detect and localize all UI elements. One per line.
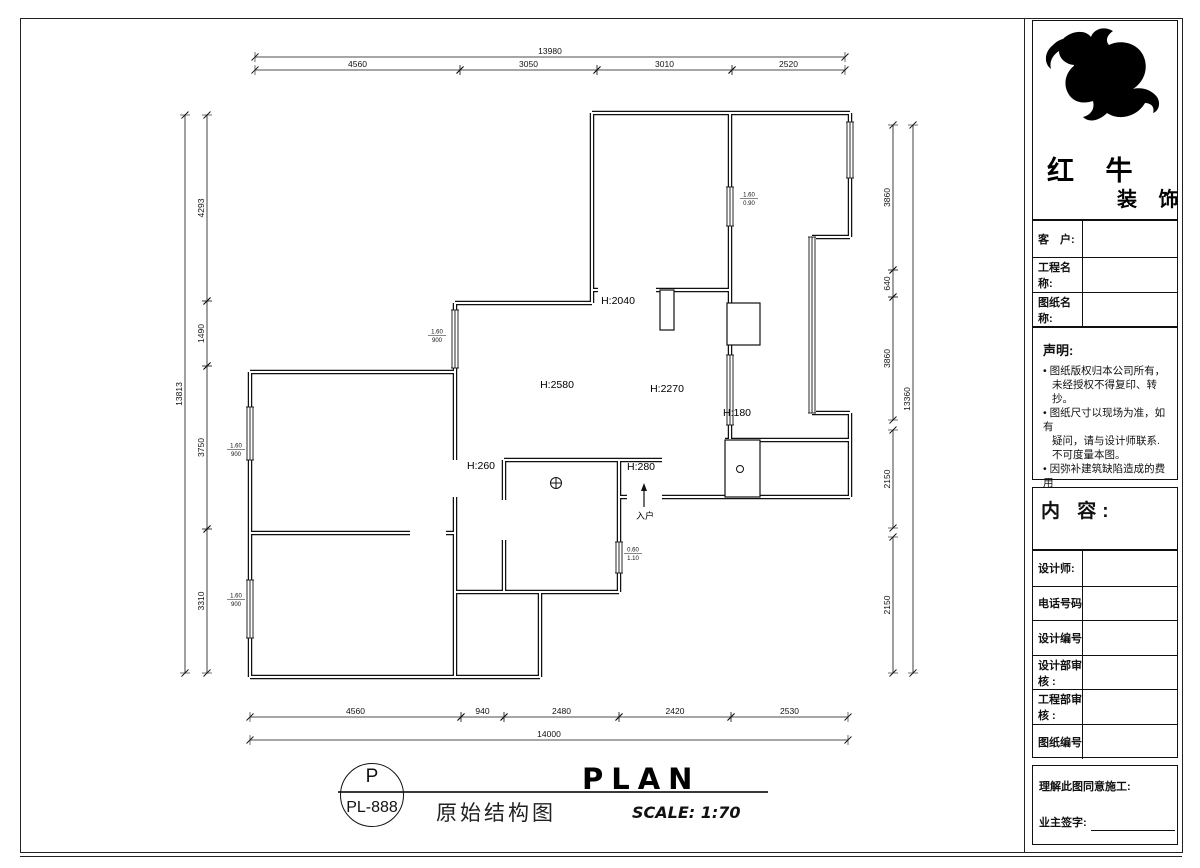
window-tag-top: 1.60 — [230, 444, 242, 450]
dimension-label: 13360 — [902, 387, 912, 411]
dimension-label: 4293 — [196, 198, 206, 217]
panel-row: 设计编号 — [1033, 620, 1177, 655]
content-label: 内 容: — [1041, 496, 1115, 523]
statement-line: 不可度量本图。 — [1041, 448, 1173, 462]
statement-lines: 图纸版权归本公司所有，未经授权不得复印、转抄。图纸尺寸以现场为准，如有疑问，请与… — [1041, 364, 1173, 504]
panel-row: 工程名称: — [1033, 257, 1177, 293]
room-height-label: H:2040 — [601, 295, 635, 307]
room-height-label: H:2580 — [540, 379, 574, 391]
statement-title: 声明: — [1043, 340, 1073, 359]
panel-row-label: 图纸名称: — [1033, 293, 1083, 328]
entry-arrow-head — [641, 483, 647, 491]
plan-word: PLAN — [582, 762, 700, 796]
dimension-label: 13980 — [538, 46, 562, 56]
window-tag-top: 1.60 — [743, 193, 755, 199]
panel-row-value — [1083, 221, 1177, 257]
dimension-label: 3310 — [196, 591, 206, 610]
dimension-label: 2420 — [666, 706, 685, 716]
dimension-label: 3750 — [196, 438, 206, 457]
panel-row-value — [1083, 551, 1177, 586]
panel-row: 工程部审核 : — [1033, 689, 1177, 724]
panel-row: 客 户: — [1033, 221, 1177, 257]
owner-signature-label: 业主签字: — [1039, 814, 1087, 830]
window-tag-top: 1.60 — [431, 330, 443, 336]
dimension-label: 2150 — [882, 469, 892, 488]
dimension-label: 3860 — [882, 349, 892, 368]
construction-agreement-label: 理解此图同意施工: — [1039, 778, 1131, 794]
dimension-label: 2520 — [779, 59, 798, 69]
signature-underline — [1091, 830, 1175, 831]
panel-row-label: 设计部审核 : — [1033, 656, 1083, 690]
panel-row-label: 工程部审核 : — [1033, 690, 1083, 724]
dimension-label: 1490 — [196, 324, 206, 343]
dimension-label: 2480 — [552, 706, 571, 716]
panel-row: 设计师: — [1033, 551, 1177, 586]
window-tag-bottom: 0.90 — [743, 201, 755, 207]
panel-row: 设计部审核 : — [1033, 655, 1177, 690]
window-tag-bottom: 1.10 — [627, 556, 639, 562]
panel-row: 图纸名称: — [1033, 292, 1177, 328]
detail-rows-box: 设计师:电话号码设计编号设计部审核 :工程部审核 :图纸编号 — [1032, 550, 1178, 758]
floor-plan-svg: 1398045603050301025204560940248024202530… — [0, 0, 1026, 868]
wall-pier — [727, 303, 760, 345]
statement-line: 未经授权不得复印、转抄。 — [1041, 378, 1173, 406]
window-tag-top: 0.60 — [627, 548, 639, 554]
logo-box: 红 牛 装 饰 — [1032, 20, 1178, 220]
panel-row-value — [1083, 587, 1177, 621]
panel-row-value — [1083, 690, 1177, 724]
window-tag-top: 1.60 — [230, 594, 242, 600]
door-stop-circle — [737, 466, 744, 473]
drawing-title: 原始结构图 — [436, 797, 556, 827]
statement-line: 图纸尺寸以现场为准，如有 — [1041, 406, 1173, 434]
statement-line: 因弥补建筑缺陷造成的费用 — [1041, 462, 1173, 490]
panel-row-value — [1083, 621, 1177, 655]
panel-row-label: 设计编号 — [1033, 621, 1083, 655]
room-height-label: H:260 — [467, 460, 495, 472]
room-height-label: H:280 — [627, 461, 655, 473]
panel-row-value — [1083, 258, 1177, 293]
panel-row-value — [1083, 656, 1177, 690]
dimension-label: 4560 — [346, 706, 365, 716]
signature-box: 理解此图同意施工: 业主签字: — [1032, 765, 1178, 845]
scale-label: SCALE: 1:70 — [632, 803, 741, 822]
dimension-label: 640 — [882, 276, 892, 290]
dimension-label: 940 — [475, 706, 489, 716]
drawing-number-letter: P — [340, 766, 404, 788]
entry-label: 入户 — [636, 510, 654, 521]
panel-row: 图纸编号 — [1033, 724, 1177, 759]
dimension-label: 2150 — [882, 595, 892, 614]
window-tag-bottom: 900 — [231, 602, 242, 608]
dimension-label: 4560 — [348, 59, 367, 69]
statement-line: 图纸版权归本公司所有， — [1041, 364, 1173, 378]
panel-row-label: 设计师: — [1033, 551, 1083, 586]
content-box: 内 容: — [1032, 487, 1178, 550]
panel-row-value — [1083, 725, 1177, 759]
statement-line: 疑问，请与设计师联系. — [1041, 434, 1173, 448]
logo-text-zhuangshi: 装 饰 — [1117, 183, 1187, 212]
bull-logo — [1033, 21, 1179, 141]
window-tag-bottom: 900 — [231, 452, 242, 458]
panel-row-label: 工程名称: — [1033, 258, 1083, 293]
drawing-number-code: PL-888 — [338, 799, 406, 817]
wall-pier — [660, 290, 674, 330]
dimension-label: 3050 — [519, 59, 538, 69]
dimension-label: 2530 — [780, 706, 799, 716]
panel-row-label: 客 户: — [1033, 221, 1083, 257]
panel-row-label: 电话号码 — [1033, 587, 1083, 621]
statement-box: 声明: 图纸版权归本公司所有，未经授权不得复印、转抄。图纸尺寸以现场为准，如有疑… — [1032, 327, 1178, 480]
drawing-sheet: 1398045603050301025204560940248024202530… — [0, 0, 1200, 868]
window-tag-bottom: 900 — [432, 338, 443, 344]
room-height-label: H:180 — [723, 407, 751, 419]
room-height-label: H:2270 — [650, 383, 684, 395]
dimension-label: 3010 — [655, 59, 674, 69]
dimension-label: 14000 — [537, 729, 561, 739]
panel-row: 电话号码 — [1033, 586, 1177, 621]
client-info-box: 客 户:工程名称:图纸名称: — [1032, 220, 1178, 327]
panel-row-value — [1083, 293, 1177, 328]
panel-row-label: 图纸编号 — [1033, 725, 1083, 759]
dimension-label: 3860 — [882, 188, 892, 207]
dimension-label: 13813 — [174, 382, 184, 406]
